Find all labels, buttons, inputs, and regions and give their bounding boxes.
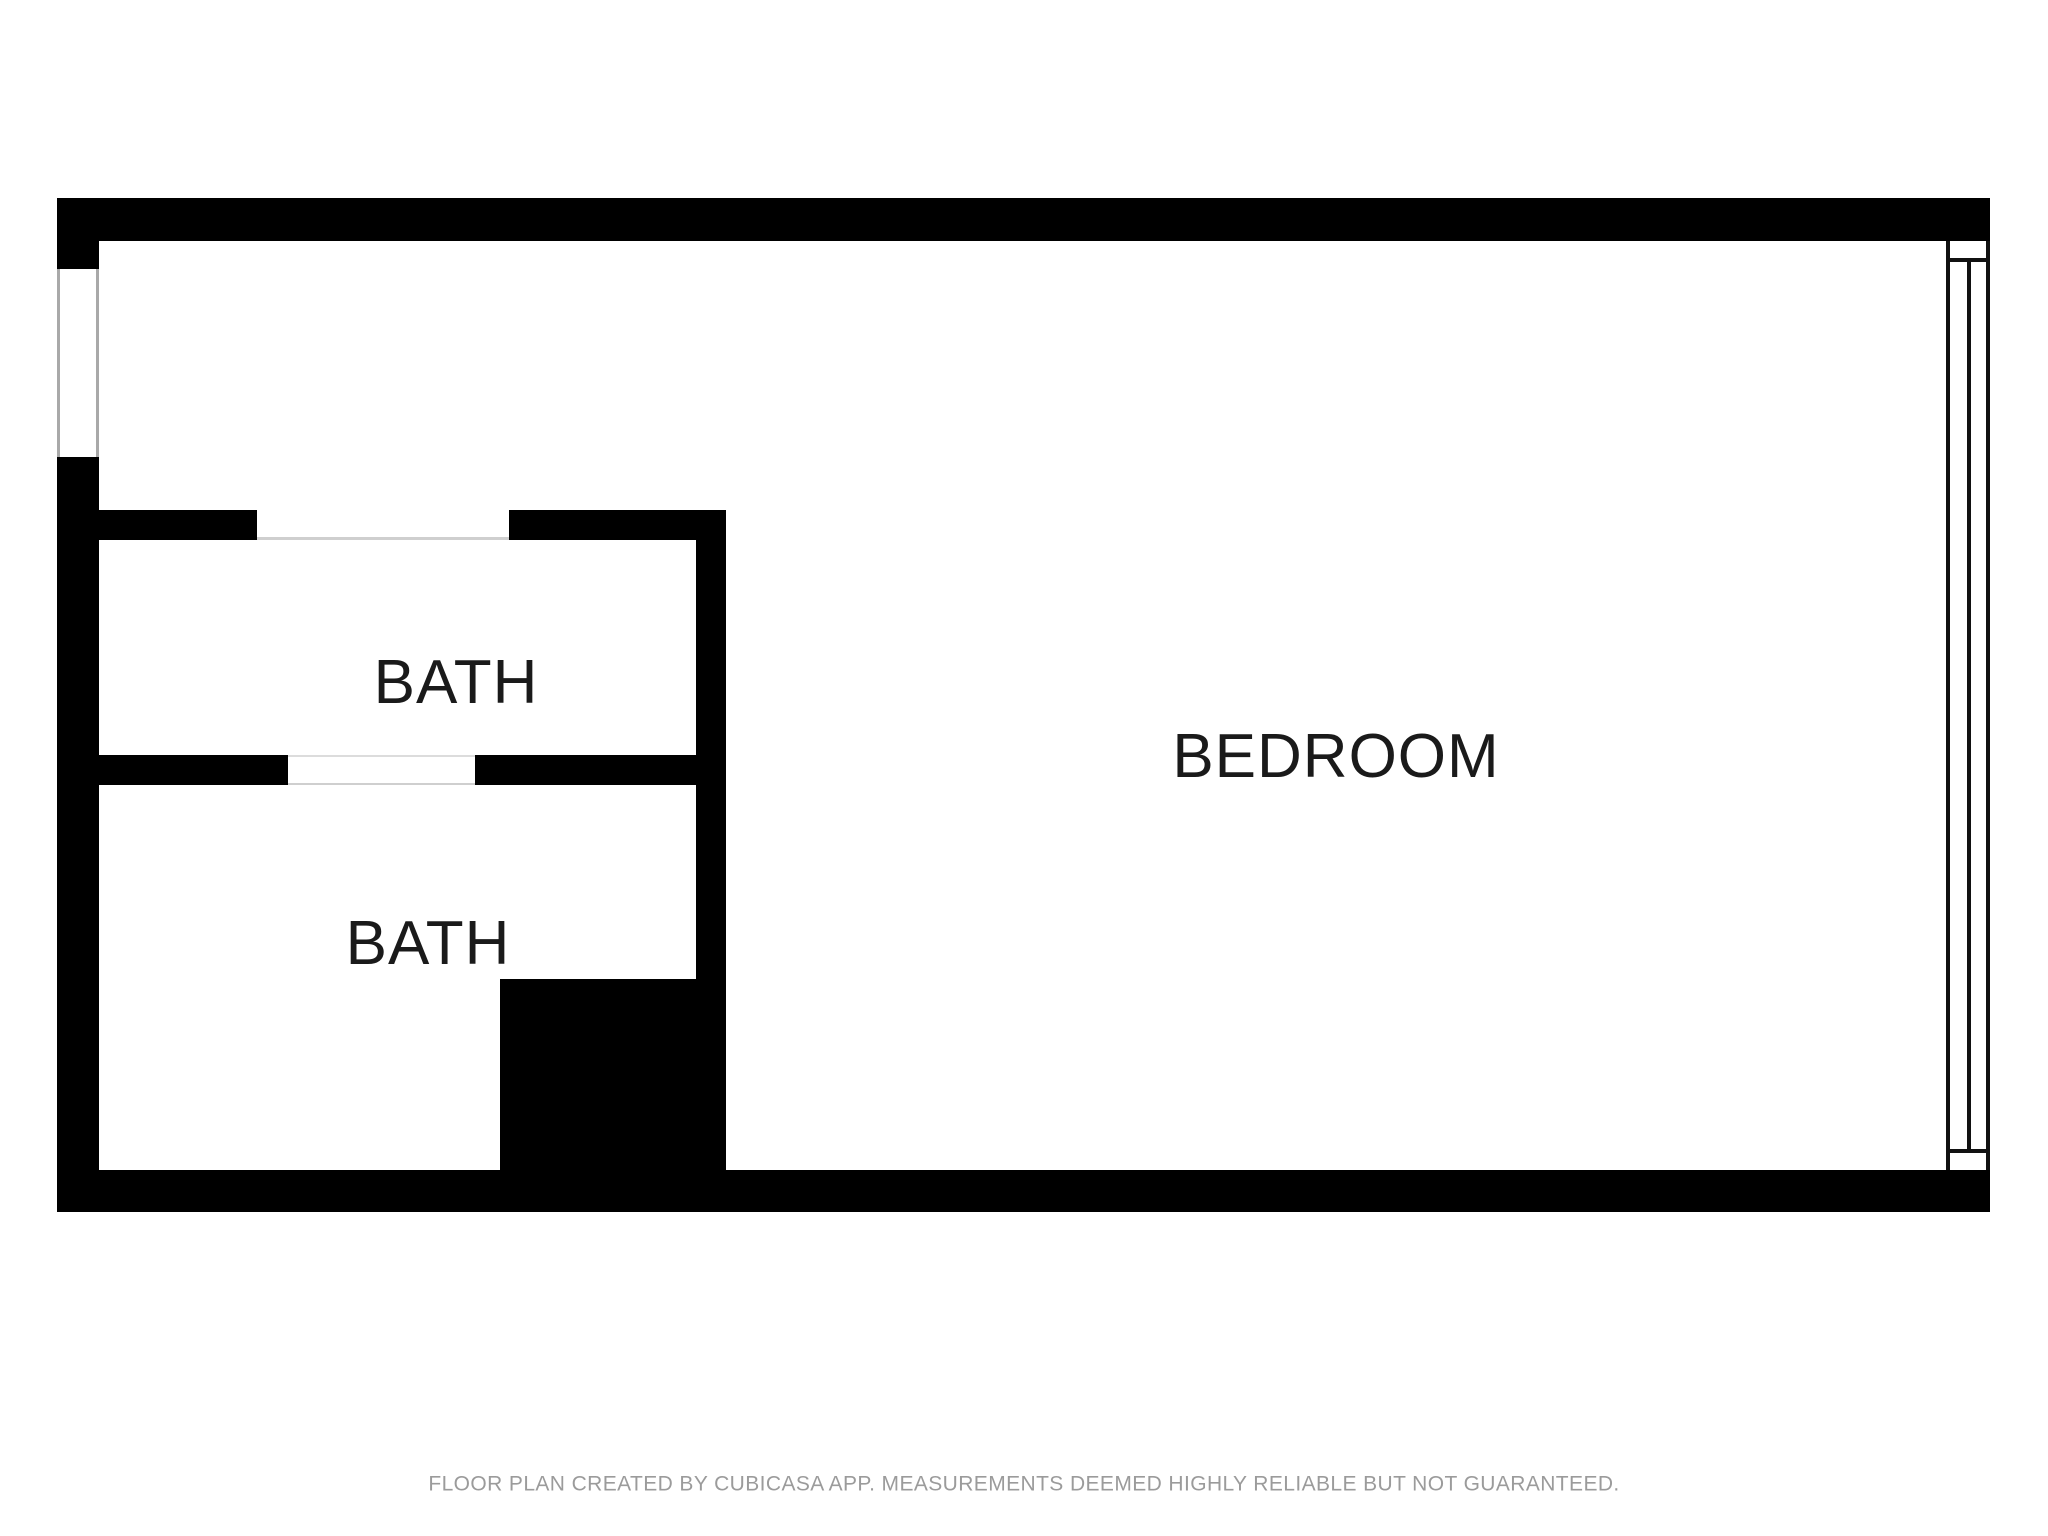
wall-bath1-top-left-segment [99, 510, 257, 540]
window-right-bottom-cap [1946, 1149, 1990, 1153]
window-right-inner-line [1946, 241, 1950, 1170]
window-right-top-cap [1946, 258, 1990, 262]
utility-block [500, 979, 726, 1212]
wall-left-lower [57, 457, 99, 1212]
wall-between-baths-right-segment [475, 755, 726, 785]
footer-disclaimer: FLOOR PLAN CREATED BY CUBICASA APP. MEAS… [428, 1474, 1619, 1495]
floor-plan-canvas: BATH BATH BEDROOM FLOOR PLAN CREATED BY … [0, 0, 2048, 1536]
window-left-inner-line [96, 269, 99, 457]
window-right [1946, 241, 1990, 1170]
wall-between-baths-left-segment [99, 755, 288, 785]
room-label-bath2: BATH [346, 913, 511, 975]
wall-top [57, 198, 1990, 241]
door-opening-bath2-bottom-line [288, 783, 475, 785]
room-label-bedroom: BEDROOM [1172, 726, 1499, 788]
room-label-bath1: BATH [374, 652, 539, 714]
wall-bottom [57, 1170, 1990, 1212]
window-left-outer-line [57, 269, 60, 457]
window-left [57, 269, 99, 457]
wall-left-upper [57, 241, 99, 269]
window-right-center-line [1967, 258, 1971, 1153]
door-opening-bath1 [257, 537, 509, 540]
wall-bath1-top-right-segment [509, 510, 726, 540]
window-right-outer-line [1986, 241, 1990, 1170]
door-opening-bath2-top-line [288, 755, 475, 757]
